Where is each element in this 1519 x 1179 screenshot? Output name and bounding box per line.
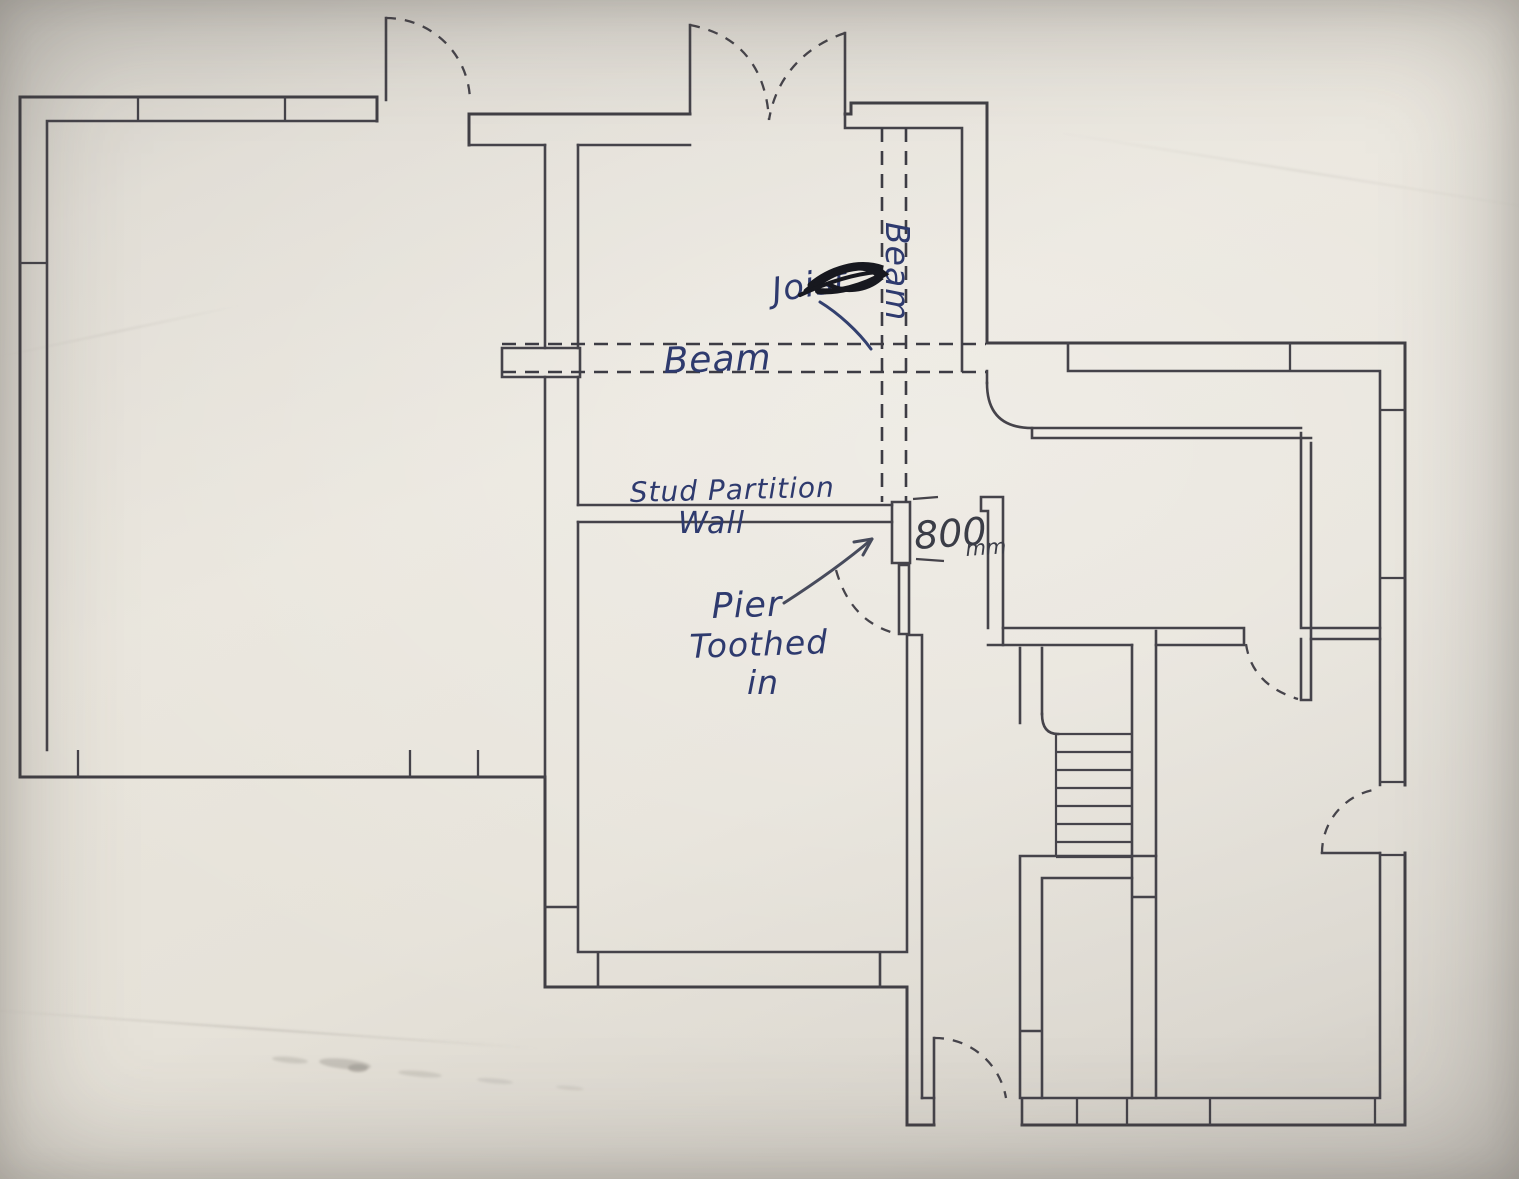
strip-room-door-leaf: [1301, 639, 1311, 700]
beam-label-horizontal: Beam: [663, 337, 772, 382]
hallway-fillet: [987, 383, 1032, 428]
door-arc-top-left: [386, 18, 470, 102]
stairs-fillet: [1042, 714, 1058, 734]
stud-partition-label-line2: Wall: [678, 506, 745, 541]
right-wall-door-arc: [1322, 789, 1380, 853]
strip-room-door-arc: [1246, 644, 1298, 699]
french-door-arc-right: [769, 33, 845, 120]
stud-partition-label-line1: Stud Partition: [629, 471, 835, 509]
pier-note-line2: Toothed: [689, 622, 829, 666]
pier-door-leaf: [899, 565, 909, 634]
strip-room-walls: [1301, 433, 1380, 639]
pier-note-line1: Pier: [711, 584, 785, 627]
toothed-pier: [892, 502, 910, 563]
french-door-arc-left: [690, 25, 769, 120]
joist-leader-line: [820, 302, 871, 349]
pier-note-line3: in: [747, 663, 779, 702]
bottom-door-arc: [934, 1038, 1006, 1098]
pier-door-arc: [836, 570, 898, 634]
dimension-800-unit: mm: [965, 534, 1007, 561]
floor-plan-photo: Beam Beam Joist Stud Partition Wall 800 …: [0, 0, 1519, 1179]
handwritten-annotations: Beam Beam Joist Stud Partition Wall 800 …: [629, 222, 1007, 702]
floor-plan-drawing: Beam Beam Joist Stud Partition Wall 800 …: [0, 0, 1519, 1179]
pier-arrow: [784, 539, 872, 603]
store-room-walls: [1020, 856, 1156, 1098]
staircase: [1056, 734, 1132, 857]
interior-walls: [502, 145, 1380, 1098]
